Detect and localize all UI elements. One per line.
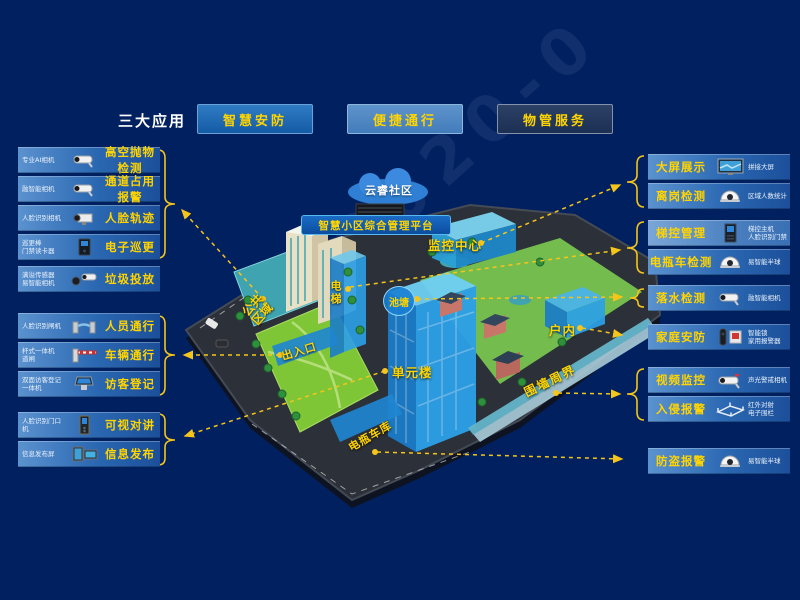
feature-row-video-surveillance[interactable]: 视频监控 声光警戒相机 [648, 367, 790, 393]
feature-row-garbage[interactable]: 满溢传感器 易智能相机 垃圾投放 [18, 266, 160, 292]
dome-camera-icon [714, 185, 746, 207]
feature-label: 人脸轨迹 [100, 210, 160, 226]
barrier-gate-icon [68, 344, 100, 366]
left-group-passage: 人脸识别闸机 人员通行 杆式一体机 道闸 车辆通行 双面访客登记 一体机 访客登… [18, 313, 160, 397]
app-button-security[interactable]: 智慧安防 [197, 104, 313, 134]
turnstile-icon [68, 315, 100, 337]
feature-label: 通道占用报警 [100, 173, 160, 205]
feature-label: 信息发布 [100, 446, 160, 462]
device-label: 人脸识别相机 [18, 214, 68, 222]
device-label: 杆式一体机 道闸 [18, 347, 68, 363]
device-label: 易智能半球 [746, 457, 790, 465]
device-label: 融智能相机 [746, 294, 790, 302]
device-label: 声光警戒相机 [746, 376, 790, 384]
right-group-elevator: 梯控管理 梯控主机 人脸识别门禁 电瓶车检测 易智能半球 [648, 220, 790, 275]
right-group-home: 家庭安防 智能锁 家用报警器 [648, 324, 790, 350]
zone-monitor-center: 监控中心 [428, 235, 482, 254]
left-group-garbage: 满溢传感器 易智能相机 垃圾投放 [18, 266, 160, 292]
right-group-monitor: 大屏展示 拼接大屏 离岗检测 区域人数统计 [648, 154, 790, 209]
zone-indoor: 户内 [549, 320, 576, 339]
feature-label: 梯控管理 [648, 225, 714, 241]
feature-row-face-track[interactable]: 人脸识别相机 人脸轨迹 [18, 205, 160, 231]
ir-fence-icon [714, 398, 746, 420]
feature-row-ebike-detect[interactable]: 电瓶车检测 易智能半球 [648, 249, 790, 275]
feature-label: 访客登记 [100, 376, 160, 392]
feature-row-burglar-alarm[interactable]: 防盗报警 易智能半球 [648, 448, 790, 474]
feature-label: 防盗报警 [648, 453, 714, 469]
feature-label: 落水检测 [648, 290, 714, 306]
feature-row-big-screen[interactable]: 大屏展示 拼接大屏 [648, 154, 790, 180]
feature-label: 车辆通行 [100, 347, 160, 363]
alert-camera-icon [714, 369, 746, 391]
small-pond-2 [509, 295, 531, 305]
box-camera-icon [68, 207, 100, 229]
right-group-burglar: 防盗报警 易智能半球 [648, 448, 790, 474]
feature-label: 电瓶车检测 [648, 254, 714, 270]
device-label: 梯控主机 人脸识别门禁 [746, 225, 790, 241]
device-label: 区域人数统计 [746, 192, 790, 200]
feature-label: 视频监控 [648, 372, 714, 388]
page-title: 三大应用 [118, 110, 186, 131]
zone-unit-building: 单元楼 [392, 362, 433, 381]
feature-row-channel-occupancy[interactable]: 融智能相机 通道占用报警 [18, 176, 160, 202]
feature-label: 家庭安防 [648, 329, 714, 345]
feature-row-video-intercom[interactable]: 人脸识别门口 机 可视对讲 [18, 412, 160, 438]
feature-label: 大屏展示 [648, 159, 714, 175]
smart-community-dashboard: 33-2020-0 [0, 0, 800, 600]
platform-banner: 智慧小区综合管理平台 [301, 215, 451, 235]
lock-alarm-icon [714, 326, 746, 348]
device-label: 专业AI相机 [18, 156, 68, 164]
zone-pond: 池塘 [383, 286, 415, 316]
feature-label: 离岗检测 [648, 188, 714, 204]
feature-row-e-patrol[interactable]: 巡更棒 门禁读卡器 电子巡更 [18, 234, 160, 260]
feature-label: 入侵报警 [648, 401, 714, 417]
feature-row-intrusion[interactable]: 入侵报警 红外对射 电子围栏 [648, 396, 790, 422]
zone-elevator: 电梯 [327, 280, 343, 306]
feature-label: 垃圾投放 [100, 271, 160, 287]
device-label: 易智能半球 [746, 258, 790, 266]
device-label: 人脸识别闸机 [18, 322, 68, 330]
app-button-passage[interactable]: 便捷通行 [347, 104, 463, 134]
info-screens-icon [68, 443, 100, 465]
feature-row-vehicle[interactable]: 杆式一体机 道闸 车辆通行 [18, 342, 160, 368]
device-label: 融智能相机 [18, 185, 68, 193]
left-group-security-cameras: 专业AI相机 高空抛物检测 融智能相机 通道占用报警 人脸识别相机 人脸轨迹 巡… [18, 147, 160, 260]
device-label: 拼接大屏 [746, 163, 790, 171]
sensor-camera-icon [68, 268, 100, 290]
cloud-community-label: 云睿社区 [352, 182, 426, 198]
feature-row-home-security[interactable]: 家庭安防 智能锁 家用报警器 [648, 324, 790, 350]
app-button-property[interactable]: 物管服务 [497, 104, 613, 134]
bullet-camera-icon [68, 178, 100, 200]
video-wall-icon [714, 156, 746, 178]
visitor-kiosk-icon [68, 373, 100, 395]
feature-row-high-altitude[interactable]: 专业AI相机 高空抛物检测 [18, 147, 160, 173]
feature-row-info-publish[interactable]: 信息发布屏 信息发布 [18, 441, 160, 467]
device-label: 智能锁 家用报警器 [746, 329, 790, 345]
device-label: 人脸识别门口 机 [18, 417, 68, 433]
feature-row-visitor[interactable]: 双面访客登记 一体机 访客登记 [18, 371, 160, 397]
device-label: 满溢传感器 易智能相机 [18, 271, 68, 287]
device-label: 信息发布屏 [18, 450, 68, 458]
feature-label: 人员通行 [100, 318, 160, 334]
left-group-intercom: 人脸识别门口 机 可视对讲 信息发布屏 信息发布 [18, 412, 160, 467]
dome-camera-icon [714, 251, 746, 273]
elevator-terminal-icon [714, 222, 746, 244]
right-group-perimeter: 视频监控 声光警戒相机 入侵报警 红外对射 电子围栏 [648, 367, 790, 422]
feature-label: 可视对讲 [100, 417, 160, 433]
right-group-drowning: 落水检测 融智能相机 [648, 285, 790, 311]
feature-row-off-duty[interactable]: 离岗检测 区域人数统计 [648, 183, 790, 209]
feature-row-pedestrian[interactable]: 人脸识别闸机 人员通行 [18, 313, 160, 339]
bullet-camera-icon [714, 287, 746, 309]
device-label: 巡更棒 门禁读卡器 [18, 239, 68, 255]
dome-camera-icon [714, 450, 746, 472]
car-dark [216, 340, 228, 347]
bullet-camera-icon [68, 149, 100, 171]
device-label: 红外对射 电子围栏 [746, 401, 790, 417]
feature-label: 电子巡更 [100, 239, 160, 255]
feature-label: 高空抛物检测 [100, 144, 160, 176]
feature-row-elevator-control[interactable]: 梯控管理 梯控主机 人脸识别门禁 [648, 220, 790, 246]
access-reader-icon [68, 236, 100, 258]
device-label: 双面访客登记 一体机 [18, 376, 68, 392]
door-station-icon [68, 414, 100, 436]
feature-row-drowning[interactable]: 落水检测 融智能相机 [648, 285, 790, 311]
